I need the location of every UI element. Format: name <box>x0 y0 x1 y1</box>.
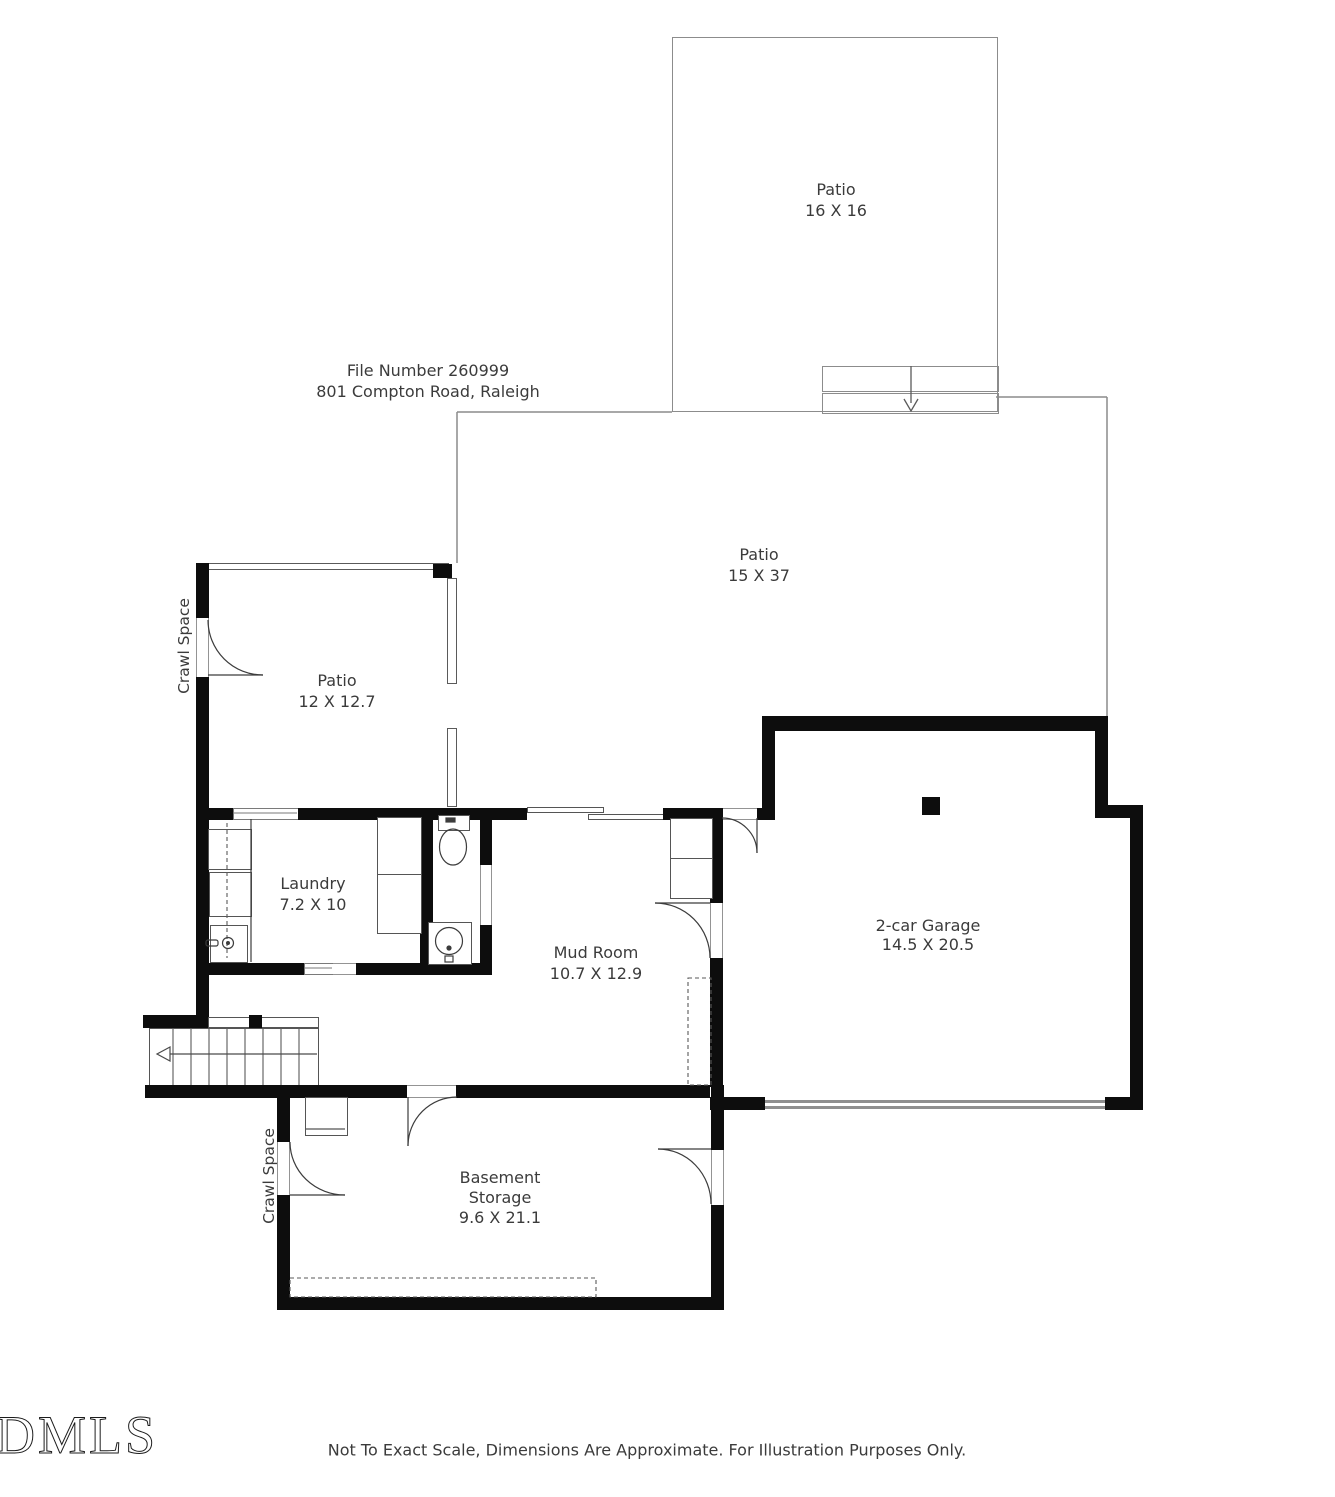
garage-post <box>922 797 940 815</box>
room-label-mudroom: Mud Room 10.7 X 12.9 <box>550 942 642 984</box>
room-dims: 14.5 X 20.5 <box>876 935 981 954</box>
crawl-space-label-lower: Crawl Space <box>260 1128 278 1224</box>
dryer <box>209 872 252 917</box>
sliding-door-panel-left <box>527 807 604 813</box>
sliding-door-panel-right <box>588 814 665 820</box>
wall-basement-right-a <box>711 1085 724 1150</box>
basement-top-door-opening <box>407 1085 456 1098</box>
basement-right-door-arc <box>658 1149 711 1204</box>
wall-stairs-stub <box>143 1015 209 1028</box>
laundry-cabinet-lower <box>377 874 422 934</box>
mudroom-door-arc <box>655 903 710 958</box>
disclaimer-text: Not To Exact Scale, Dimensions Are Appro… <box>328 1440 966 1461</box>
room-name: Laundry <box>280 873 347 894</box>
basement-left-door-arc <box>290 1142 345 1195</box>
room-dims: 15 X 37 <box>728 565 790 586</box>
room-label-garage: 2-car Garage 14.5 X 20.5 <box>876 916 981 954</box>
basement-left-door-opening <box>277 1142 290 1195</box>
bath-door-opening <box>480 865 492 925</box>
room-name: Patio <box>298 670 375 691</box>
laundry-sink <box>210 925 248 963</box>
floor-plan-canvas: Patio 16 X 16 File Number 260999 801 Com… <box>0 0 1335 1497</box>
toilet-tank <box>438 815 470 831</box>
washer <box>208 829 252 870</box>
room-name-2: Storage <box>459 1188 541 1208</box>
laundry-top-window <box>233 808 300 820</box>
basement-top-door-arc <box>408 1097 457 1146</box>
patio-small-rail-lower <box>447 728 457 807</box>
mudroom-locker-upper <box>670 818 713 860</box>
patio-steps-lower <box>822 393 999 414</box>
plan-header: File Number 260999 801 Compton Road, Ral… <box>316 360 540 402</box>
crawl-space-label-left: Crawl Space <box>175 598 193 694</box>
room-name: 2-car Garage <box>876 916 981 935</box>
stairs-wall-tick <box>249 1015 262 1028</box>
garage-door <box>765 1100 1105 1109</box>
patio-small-corner-post <box>433 564 452 578</box>
mudroom-locker-lower <box>670 858 713 899</box>
room-label-basement: Basement Storage 9.6 X 21.1 <box>459 1168 541 1228</box>
patio-small-door-opening <box>196 618 209 677</box>
wall-left-upper <box>196 563 209 620</box>
wall-basement-right-b <box>711 1205 724 1310</box>
wall-basement-bottom <box>277 1297 724 1310</box>
room-name: Mud Room <box>550 942 642 963</box>
wall-mudroom-right-b <box>710 958 723 1087</box>
basement-utility-box <box>305 1097 348 1136</box>
wall-bath-right-a <box>480 808 492 865</box>
garage-entry-door-arc <box>722 818 757 853</box>
wall-basement-left-a <box>277 1092 290 1142</box>
room-label-laundry: Laundry 7.2 X 10 <box>280 873 347 915</box>
mudroom-door-opening <box>710 903 723 958</box>
stairs-treads-area <box>149 1028 319 1087</box>
wall-garage-left <box>762 716 775 818</box>
room-dims: 9.6 X 21.1 <box>459 1208 541 1228</box>
room-name: Basement <box>459 1168 541 1188</box>
wall-garage-bottom-right <box>1105 1097 1143 1110</box>
room-label-patio-small: Patio 12 X 12.7 <box>298 670 375 712</box>
room-dims: 16 X 16 <box>805 200 867 221</box>
bath-sink-counter <box>428 922 472 965</box>
room-name: Patio <box>728 544 790 565</box>
wall-basement-left-b <box>277 1195 290 1310</box>
room-label-patio-main: Patio 15 X 37 <box>728 544 790 586</box>
wall-laundry-bottom-a <box>196 963 304 975</box>
wall-top-laundry-a <box>196 808 233 820</box>
room-dims: 7.2 X 10 <box>280 894 347 915</box>
wall-garage-right-lower <box>1130 805 1143 1110</box>
stairs-top-landing <box>208 1017 319 1028</box>
patio-small-top-edge <box>198 563 449 570</box>
room-label-patio-upper: Patio 16 X 16 <box>805 179 867 221</box>
laundry-bottom-window <box>304 963 335 975</box>
patio-small-door-arc <box>208 620 263 675</box>
basement-right-door-opening <box>711 1150 724 1205</box>
room-name: Patio <box>805 179 867 200</box>
room-dims: 12 X 12.7 <box>298 691 375 712</box>
room-dims: 10.7 X 12.9 <box>550 963 642 984</box>
property-address: 801 Compton Road, Raleigh <box>316 381 540 402</box>
laundry-cabinet-upper <box>377 817 422 875</box>
patio-steps-upper <box>822 366 999 392</box>
garage-entry-door-opening <box>722 808 757 820</box>
patio-upper-outline <box>672 37 998 412</box>
laundry-bottom-opening <box>333 963 356 975</box>
file-number: File Number 260999 <box>316 360 540 381</box>
toilet-bowl <box>440 829 467 865</box>
wall-garage-top <box>762 716 1108 731</box>
patio-small-rail-upper <box>447 578 457 684</box>
wall-garage-right-upper <box>1095 716 1108 817</box>
dmls-logo: DMLS <box>0 1404 158 1466</box>
